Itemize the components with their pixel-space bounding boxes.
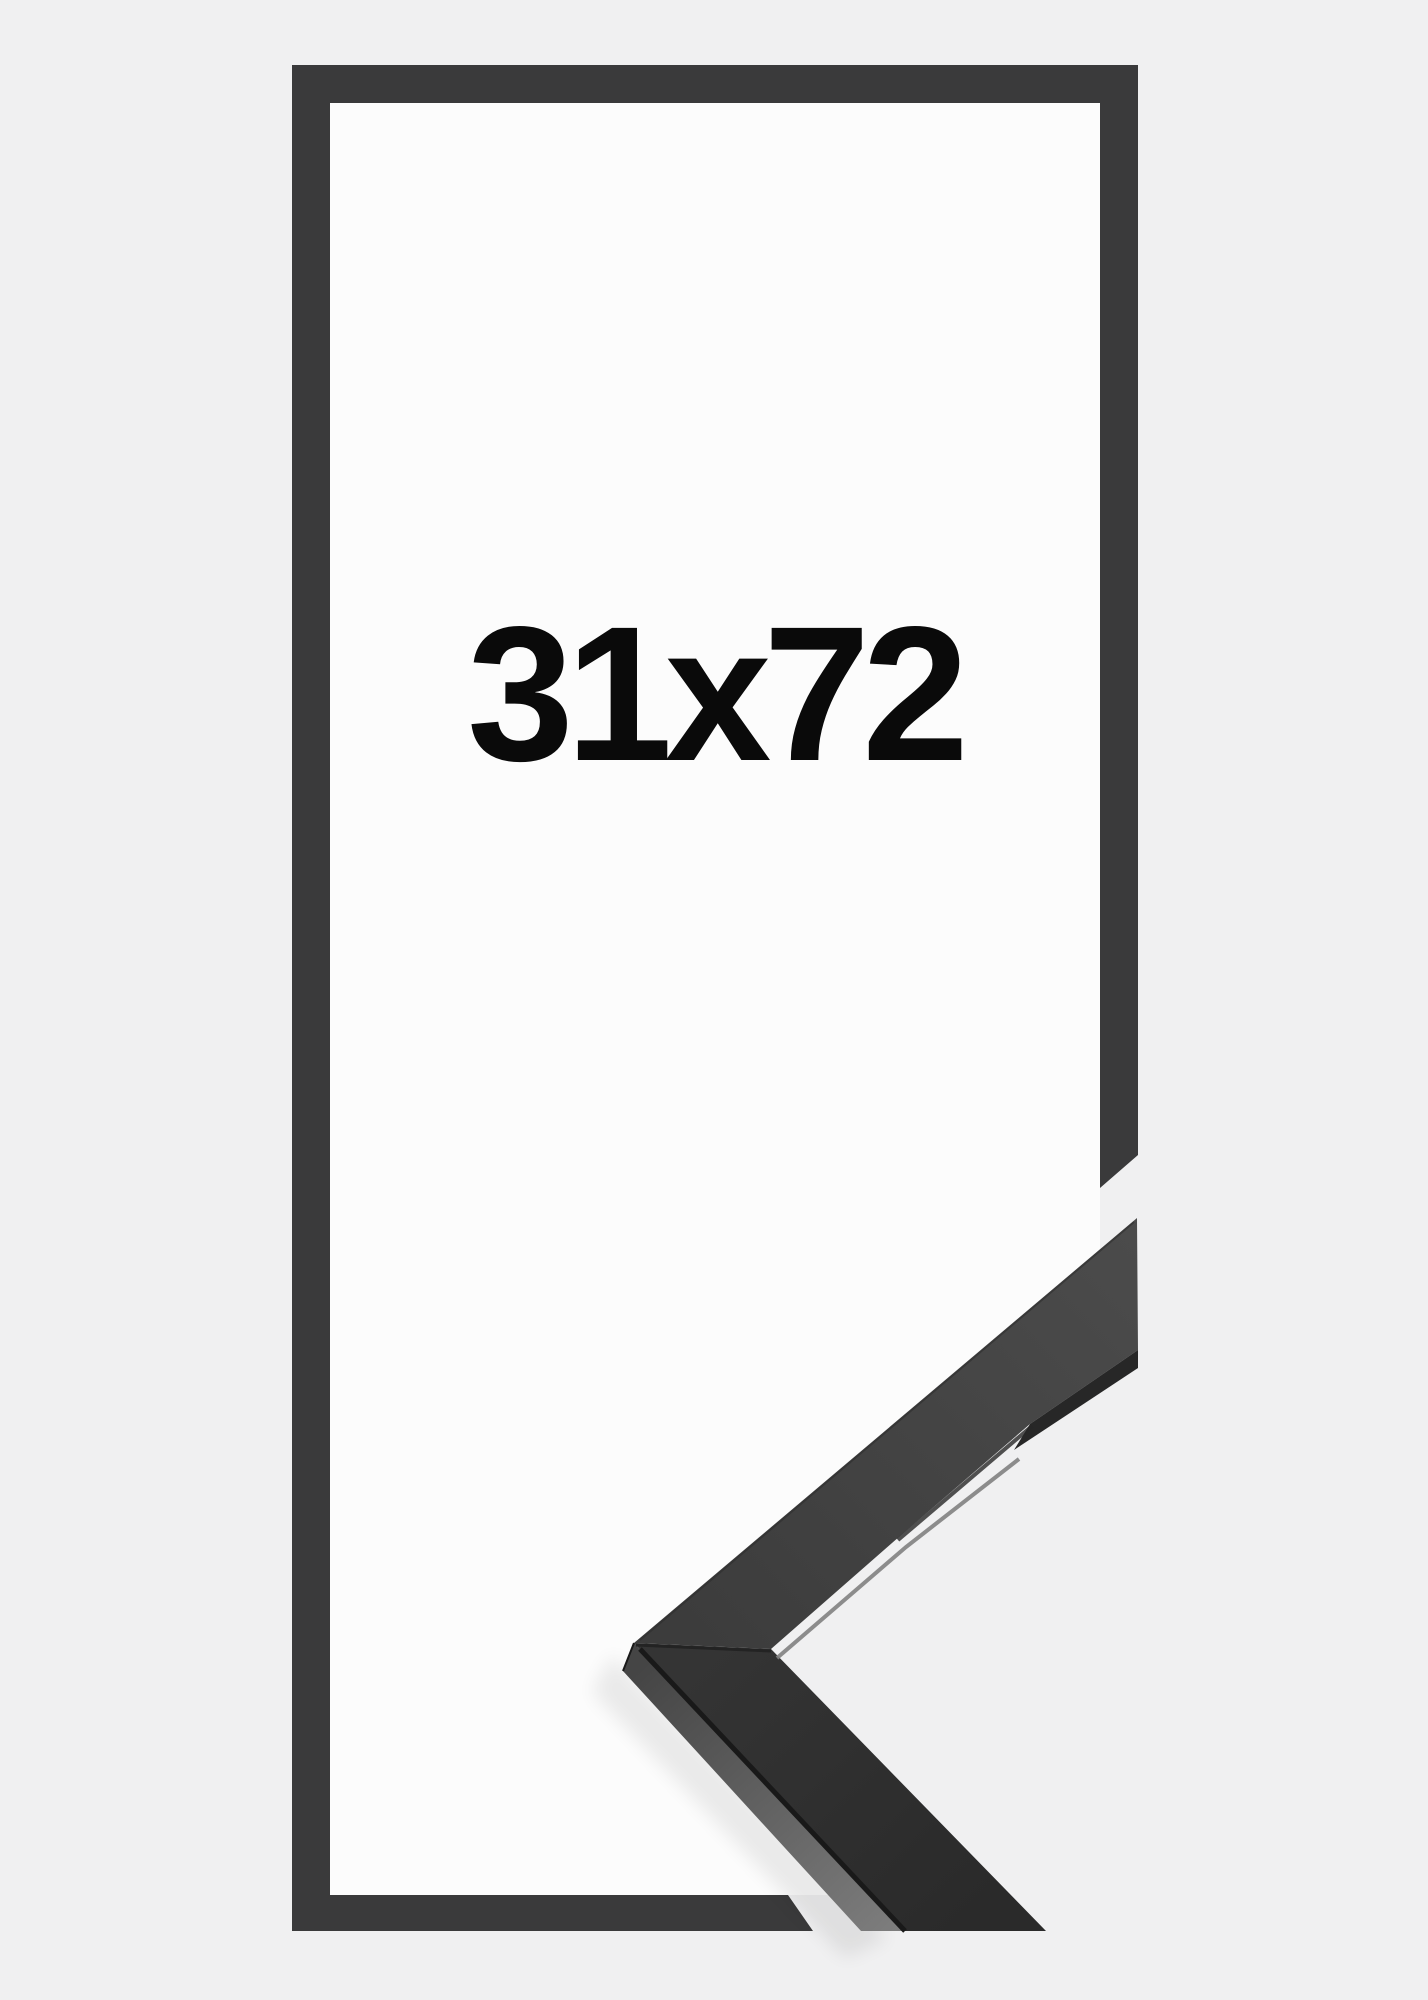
product-photo: 31x72	[0, 0, 1428, 2000]
size-label: 31x72	[467, 586, 962, 801]
frame-product-image: 31x72	[0, 0, 1428, 2000]
